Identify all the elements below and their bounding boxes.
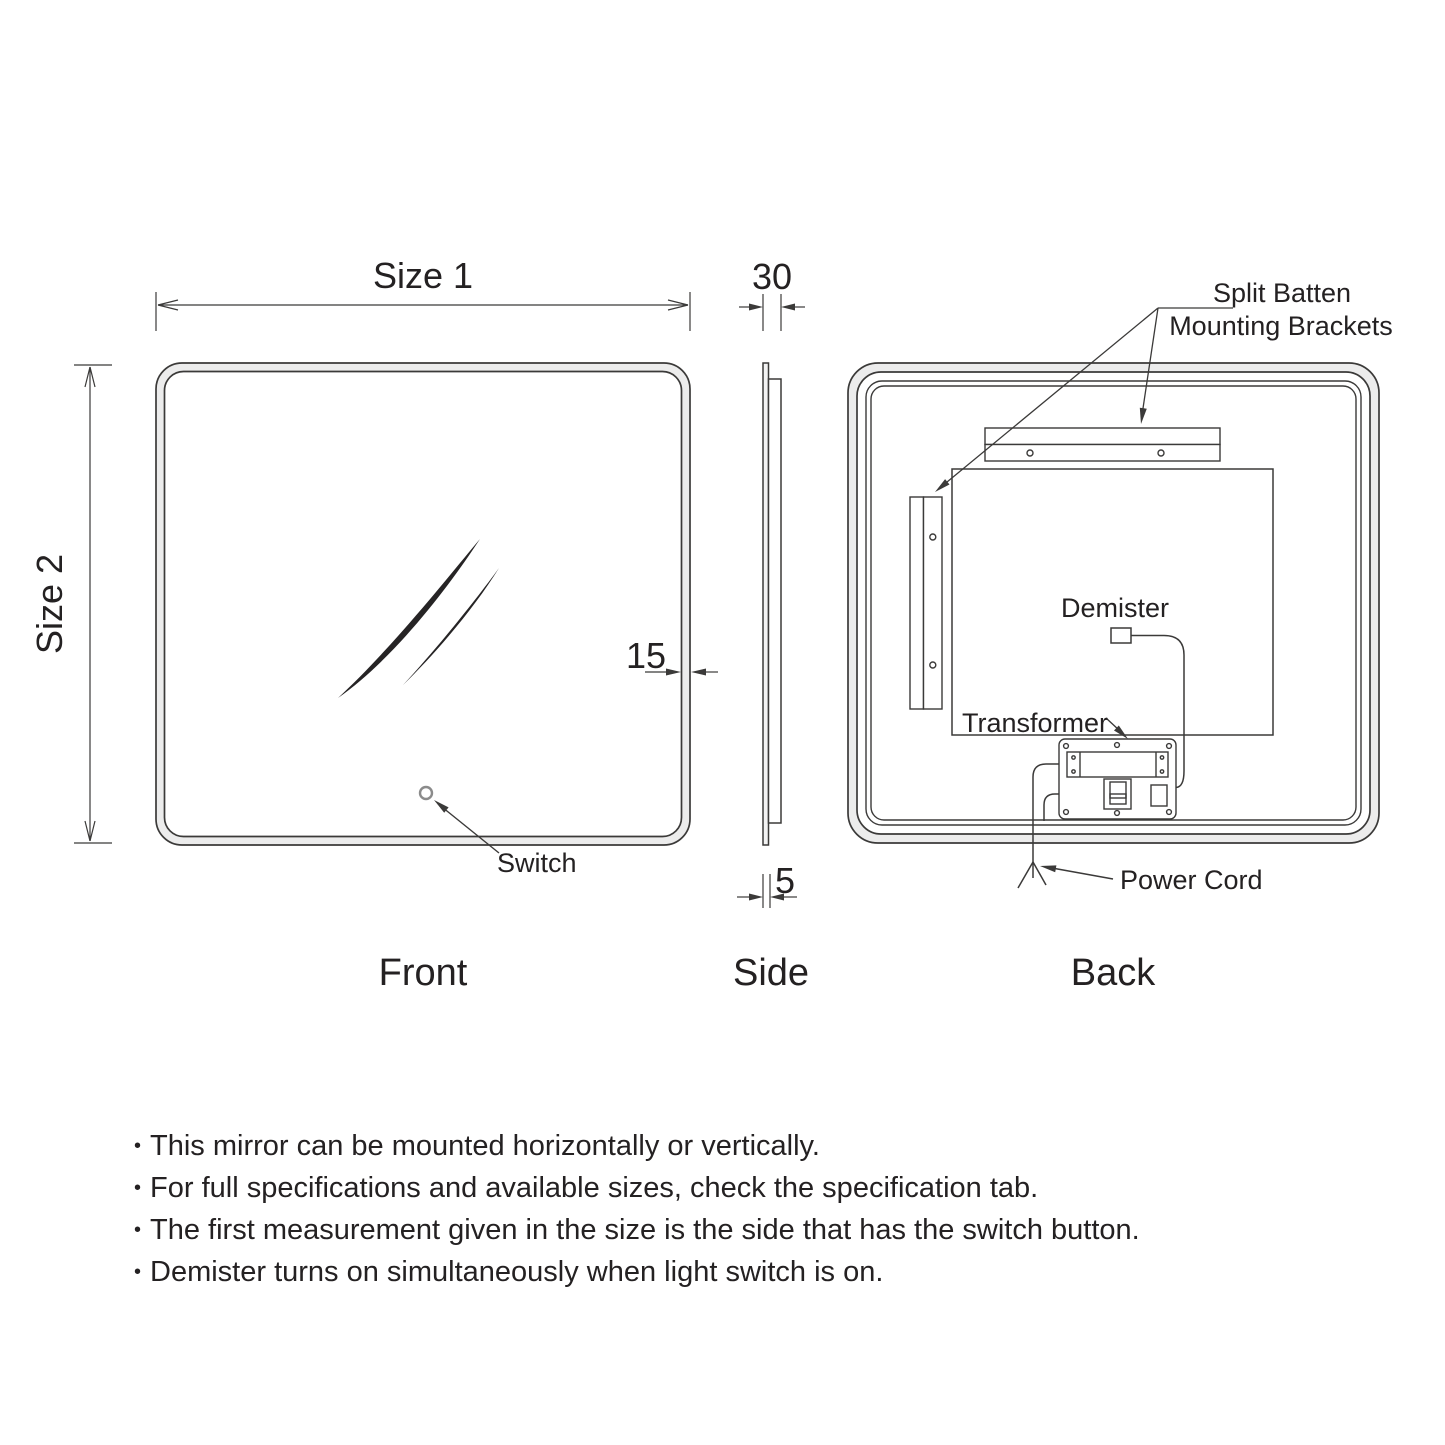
transformer-box <box>1059 739 1176 819</box>
bullet-icon: • <box>134 1219 141 1241</box>
power-cord-label: Power Cord <box>1120 865 1263 895</box>
notes-list: •This mirror can be mounted horizontally… <box>134 1127 1374 1295</box>
cord-end-fork <box>1033 862 1046 885</box>
note-item: •For full specifications and available s… <box>134 1169 1374 1211</box>
bracket-screw-hole <box>930 662 936 668</box>
bracket-screw-hole <box>1027 450 1033 456</box>
bracket-screw-hole <box>930 534 936 540</box>
dim-arrow-filled <box>749 894 763 901</box>
side-backing <box>769 379 782 823</box>
size1-dimension <box>156 292 690 331</box>
note-text: For full specifications and available si… <box>150 1172 1038 1204</box>
cord-end-fork <box>1018 862 1033 888</box>
dim-arrow-filled <box>691 669 706 676</box>
note-item: •The first measurement given in the size… <box>134 1211 1374 1253</box>
back-view-caption: Back <box>1071 952 1156 994</box>
bullet-icon: • <box>134 1177 141 1199</box>
front-view <box>156 363 690 845</box>
side-view-caption: Side <box>733 952 809 994</box>
bracket-screw-hole <box>1158 450 1164 456</box>
side-glass <box>763 363 769 845</box>
glass-5-label: 5 <box>775 860 795 901</box>
transformer-label: Transformer <box>962 708 1108 738</box>
size2-dimension <box>74 365 112 843</box>
side-view <box>763 363 781 845</box>
frame-15-label: 15 <box>626 635 666 676</box>
dim-arrow-filled <box>749 304 763 311</box>
switch-label: Switch <box>497 848 577 878</box>
size1-label: Size 1 <box>373 255 473 296</box>
front-view-caption: Front <box>379 952 468 994</box>
back-view <box>848 363 1379 888</box>
split-batten-label-line1: Split Batten <box>1213 278 1351 308</box>
demister-label: Demister <box>1061 593 1169 623</box>
mirror-spec-sheet: Size 1 Size 2 30 15 5 Swi <box>0 0 1445 1445</box>
size2-label: Size 2 <box>29 554 70 654</box>
bullet-icon: • <box>134 1135 141 1157</box>
mounting-bracket-left <box>910 497 942 709</box>
power-cord-annotation <box>1040 865 1113 879</box>
bullet-icon: • <box>134 1261 141 1283</box>
split-batten-label-line2: Mounting Brackets <box>1169 311 1393 341</box>
depth-30-label: 30 <box>752 256 792 297</box>
note-item: •This mirror can be mounted horizontally… <box>134 1127 1374 1169</box>
leader-arrow <box>1040 865 1056 872</box>
dim-arrow-filled <box>781 304 795 311</box>
depth-30-dimension <box>739 294 805 331</box>
note-text: Demister turns on simultaneously when li… <box>150 1256 883 1288</box>
note-item: •Demister turns on simultaneously when l… <box>134 1253 1374 1295</box>
front-inner-frame <box>165 372 682 837</box>
mounting-bracket-top <box>985 428 1220 461</box>
note-text: The first measurement given in the size … <box>150 1214 1140 1246</box>
note-text: This mirror can be mounted horizontally … <box>150 1130 820 1162</box>
